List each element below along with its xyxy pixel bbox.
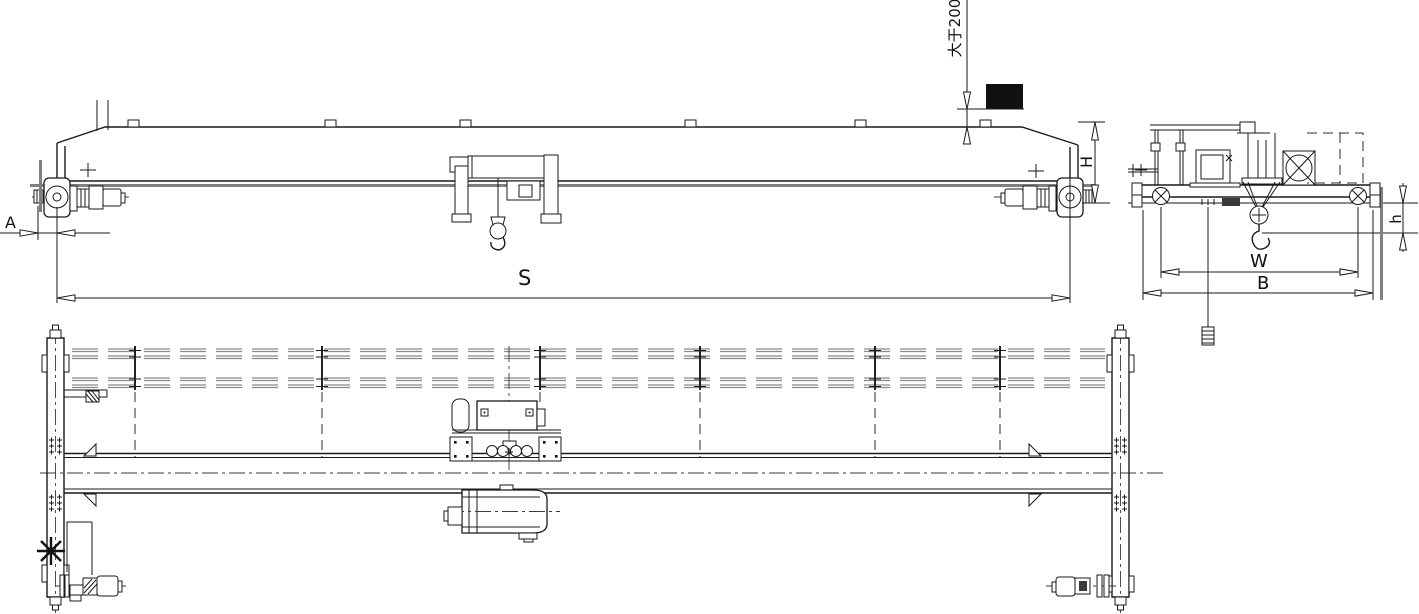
gusset-plate	[1029, 444, 1041, 456]
motor-cap	[118, 581, 122, 592]
flange-plate	[64, 355, 69, 372]
side-shaft	[1128, 164, 1158, 177]
arrowhead	[1400, 186, 1407, 203]
girder-plan	[40, 444, 1165, 506]
arrowhead	[57, 230, 75, 236]
rope-drum	[468, 156, 552, 178]
trolley-motor	[452, 399, 469, 432]
travel-motor	[103, 189, 121, 206]
bearing-cap	[1132, 195, 1142, 207]
dimension-span: S	[57, 152, 1070, 303]
hanger-plate	[455, 166, 468, 220]
lifting-lug	[980, 120, 991, 127]
travel-motor	[1005, 189, 1023, 206]
hoist-bottom-step	[524, 539, 533, 542]
hanger-rod	[994, 346, 1006, 458]
side-plate	[450, 437, 472, 461]
arrowhead	[1092, 185, 1099, 203]
arrowhead	[1400, 233, 1407, 250]
axle-stub	[1115, 330, 1126, 338]
arrowhead	[57, 295, 75, 301]
bearing-cap	[1132, 183, 1142, 195]
hanger-rod	[694, 346, 706, 458]
arrowhead	[1052, 295, 1070, 301]
coupling-disc	[65, 575, 69, 597]
axle-stub	[1115, 597, 1126, 605]
left-end-truck-elevation	[32, 163, 132, 217]
drive-position-marker-icon	[37, 537, 65, 565]
arrowhead	[1143, 290, 1161, 296]
travel-motor	[97, 576, 118, 596]
clearance-label: 大于200	[946, 0, 964, 57]
coupling	[1037, 189, 1049, 207]
boss-dot	[484, 412, 486, 414]
leg-clamp	[1176, 143, 1185, 151]
gearbox	[89, 186, 103, 209]
lifting-lug	[855, 120, 866, 127]
rope-reeving	[1243, 182, 1280, 209]
height-label: H	[1077, 156, 1096, 168]
carriage-length-label: B	[1257, 273, 1269, 294]
plan-view	[37, 325, 1165, 613]
trolley-wheel-icon	[498, 446, 509, 457]
gearbox-core	[1079, 581, 1087, 591]
rail-dashes	[1202, 199, 1214, 205]
bottom-drive-unit	[1046, 575, 1118, 597]
coupling-disc	[1104, 575, 1109, 597]
side-plate	[539, 437, 561, 461]
motor-cap	[444, 511, 448, 521]
hanger-rod	[869, 346, 881, 458]
boss-dot	[529, 412, 531, 414]
buffer	[1083, 190, 1092, 203]
cable-trolley-bracket	[64, 390, 107, 402]
travel-wheel-icon	[46, 186, 68, 208]
left-end-truck-plan	[37, 325, 126, 613]
lifting-lug	[685, 120, 696, 127]
bearing-cap	[1370, 195, 1380, 207]
wheel-base-label: W	[1250, 251, 1268, 272]
bottom-drive-unit	[56, 575, 126, 601]
arrowhead	[1092, 122, 1099, 140]
rail-clamp-block	[1222, 198, 1240, 206]
base-plate	[1190, 183, 1240, 187]
front-elevation-view: 大于200 S A H	[0, 0, 1110, 303]
hook-icon	[1252, 224, 1269, 249]
crane-general-arrangement-drawing: 大于200 S A H	[0, 0, 1419, 614]
motor-cap	[1001, 193, 1005, 203]
brake-block	[70, 585, 83, 595]
leg-clamp	[1151, 143, 1160, 151]
main-girder	[30, 100, 1095, 186]
flange-plate	[1129, 576, 1134, 592]
panel-frame	[67, 522, 92, 575]
hanger-plate	[544, 155, 558, 220]
hoist-trolley-plan	[444, 346, 561, 542]
hanger-shoe	[452, 214, 471, 222]
arrowhead	[964, 127, 971, 144]
trolley-wheel-icon	[487, 446, 498, 457]
pendant-body	[1202, 327, 1214, 345]
hanger-rod	[129, 346, 141, 458]
coupling-disc	[60, 575, 64, 597]
trolley-wheel-icon	[511, 446, 522, 457]
flange-plate	[42, 565, 47, 582]
axle-cap	[1118, 605, 1124, 610]
hanger-rod	[534, 346, 546, 408]
bearing-plate	[70, 186, 77, 211]
hanger-shoe	[541, 214, 561, 223]
girder-outline	[57, 127, 1078, 181]
bearing-cap	[1370, 183, 1380, 195]
gusset-plate	[1029, 494, 1041, 506]
lifting-lug	[128, 120, 139, 127]
drawing-canvas: 大于200 S A H	[0, 0, 1419, 614]
frame-side-box	[537, 409, 545, 426]
bearing-plate	[1049, 186, 1056, 211]
girder-section-webs	[1248, 133, 1275, 178]
lifting-lug	[325, 120, 336, 127]
top-bracket	[1240, 122, 1255, 133]
right-end-truck-plan	[1046, 325, 1134, 613]
flange-plate	[1107, 355, 1112, 372]
travel-motor	[1056, 577, 1075, 596]
lifting-lug	[460, 120, 471, 127]
arrowhead	[1340, 269, 1358, 275]
trolley-wheel-icon	[522, 446, 533, 457]
gearbox	[1023, 186, 1037, 209]
axle-cap	[1118, 325, 1124, 330]
motor-cap	[1052, 582, 1056, 592]
flange-plate	[1129, 355, 1134, 372]
electric-hoist-elevation	[450, 155, 561, 250]
grease-point-cross	[1028, 164, 1044, 178]
gusset-plate	[84, 494, 96, 506]
end-view: W B h	[1128, 122, 1418, 345]
dimension-hook-headroom: h	[1387, 183, 1406, 252]
track-hangers	[129, 346, 1006, 458]
arrowhead	[20, 230, 38, 236]
axle-stub	[50, 330, 61, 338]
arrowhead	[1161, 269, 1179, 275]
coupling-disc	[1097, 575, 1102, 597]
span-label: S	[518, 266, 531, 290]
festoon-track-bands	[72, 349, 1105, 388]
axle-cap	[53, 605, 59, 610]
hoist-motor-stub	[448, 507, 462, 525]
axle-stub	[50, 597, 61, 605]
motor-cap	[121, 193, 125, 203]
hook-headroom-label: h	[1387, 214, 1405, 224]
axle-cap	[53, 325, 59, 330]
ceiling-obstacle-block	[986, 84, 1023, 109]
flange-plate	[42, 355, 47, 372]
coupling	[77, 189, 89, 207]
hanger-rod	[316, 346, 328, 458]
brake-base	[70, 595, 81, 601]
grease-point-cross	[80, 163, 96, 177]
gusset-plate	[84, 444, 96, 456]
approach-label: A	[5, 213, 16, 232]
pendant-control-icon	[1202, 327, 1214, 345]
arrowhead	[964, 92, 971, 109]
hook-pulley	[490, 223, 506, 239]
arrowhead	[1355, 290, 1373, 296]
hoist-bottom-tab	[519, 533, 537, 539]
